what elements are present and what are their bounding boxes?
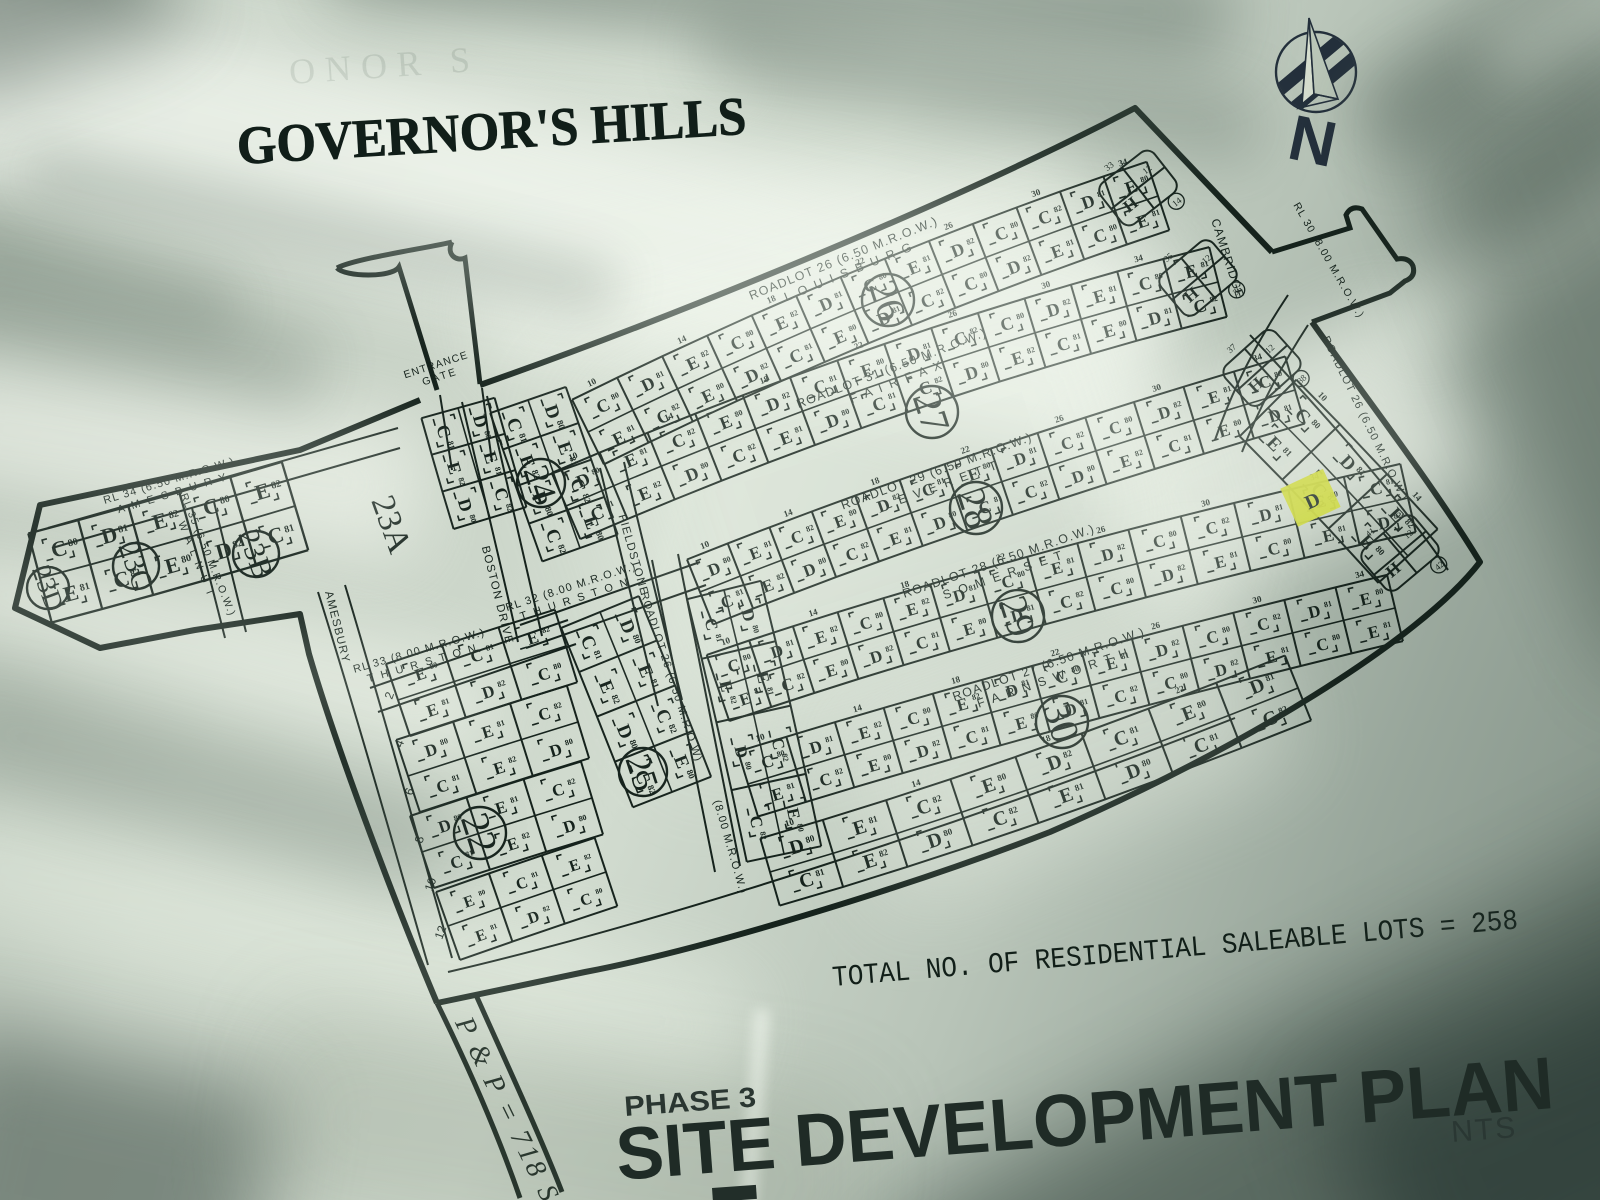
svg-text:NTS: NTS (1450, 1111, 1518, 1149)
svg-text:GOVERNOR'S HILLS: GOVERNOR'S HILLS (235, 86, 748, 176)
svg-text:SITE DEVELOPMENT PLAN: SITE DEVELOPMENT PLAN (613, 1041, 1557, 1196)
